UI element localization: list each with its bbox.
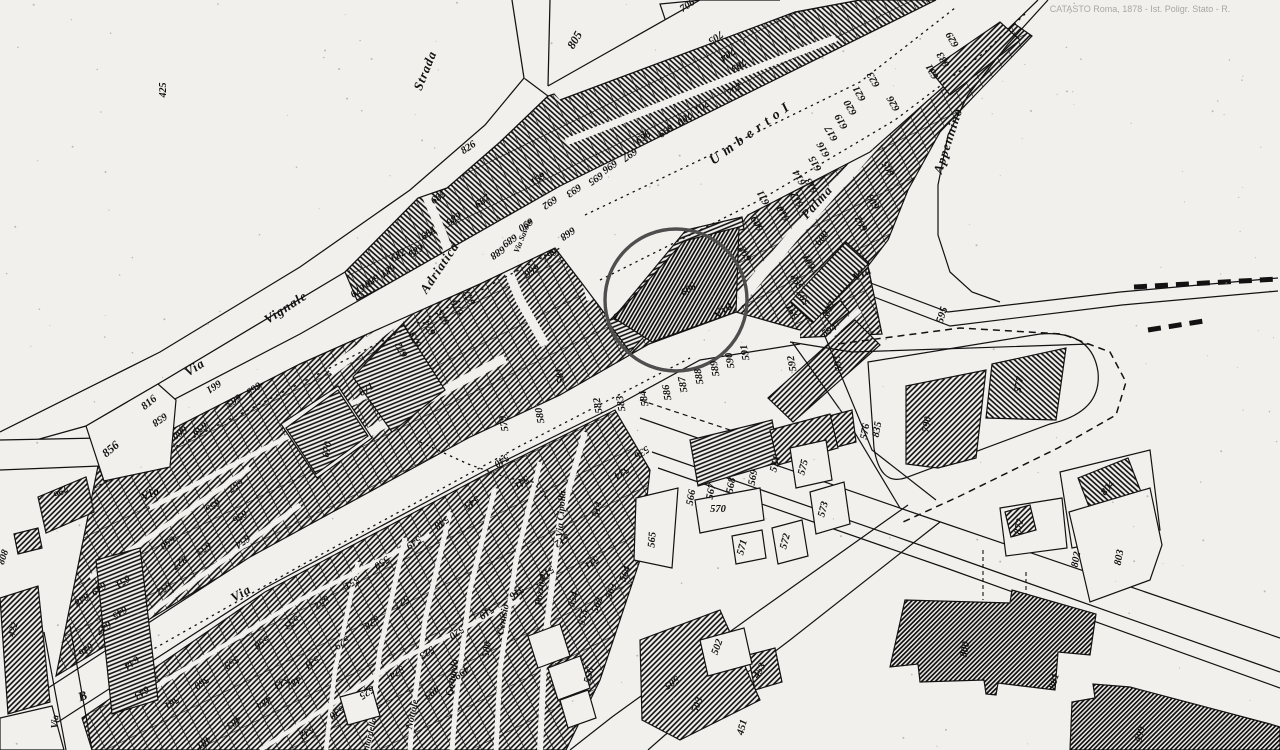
svg-text:Via: Via: [49, 714, 61, 729]
svg-text:CATASTO Roma, 1878 - Ist. Poli: CATASTO Roma, 1878 - Ist. Poligr. Stato …: [1050, 4, 1231, 14]
svg-text:565: 565: [646, 531, 658, 548]
svg-text:570: 570: [710, 504, 727, 515]
svg-text:425: 425: [158, 83, 169, 99]
